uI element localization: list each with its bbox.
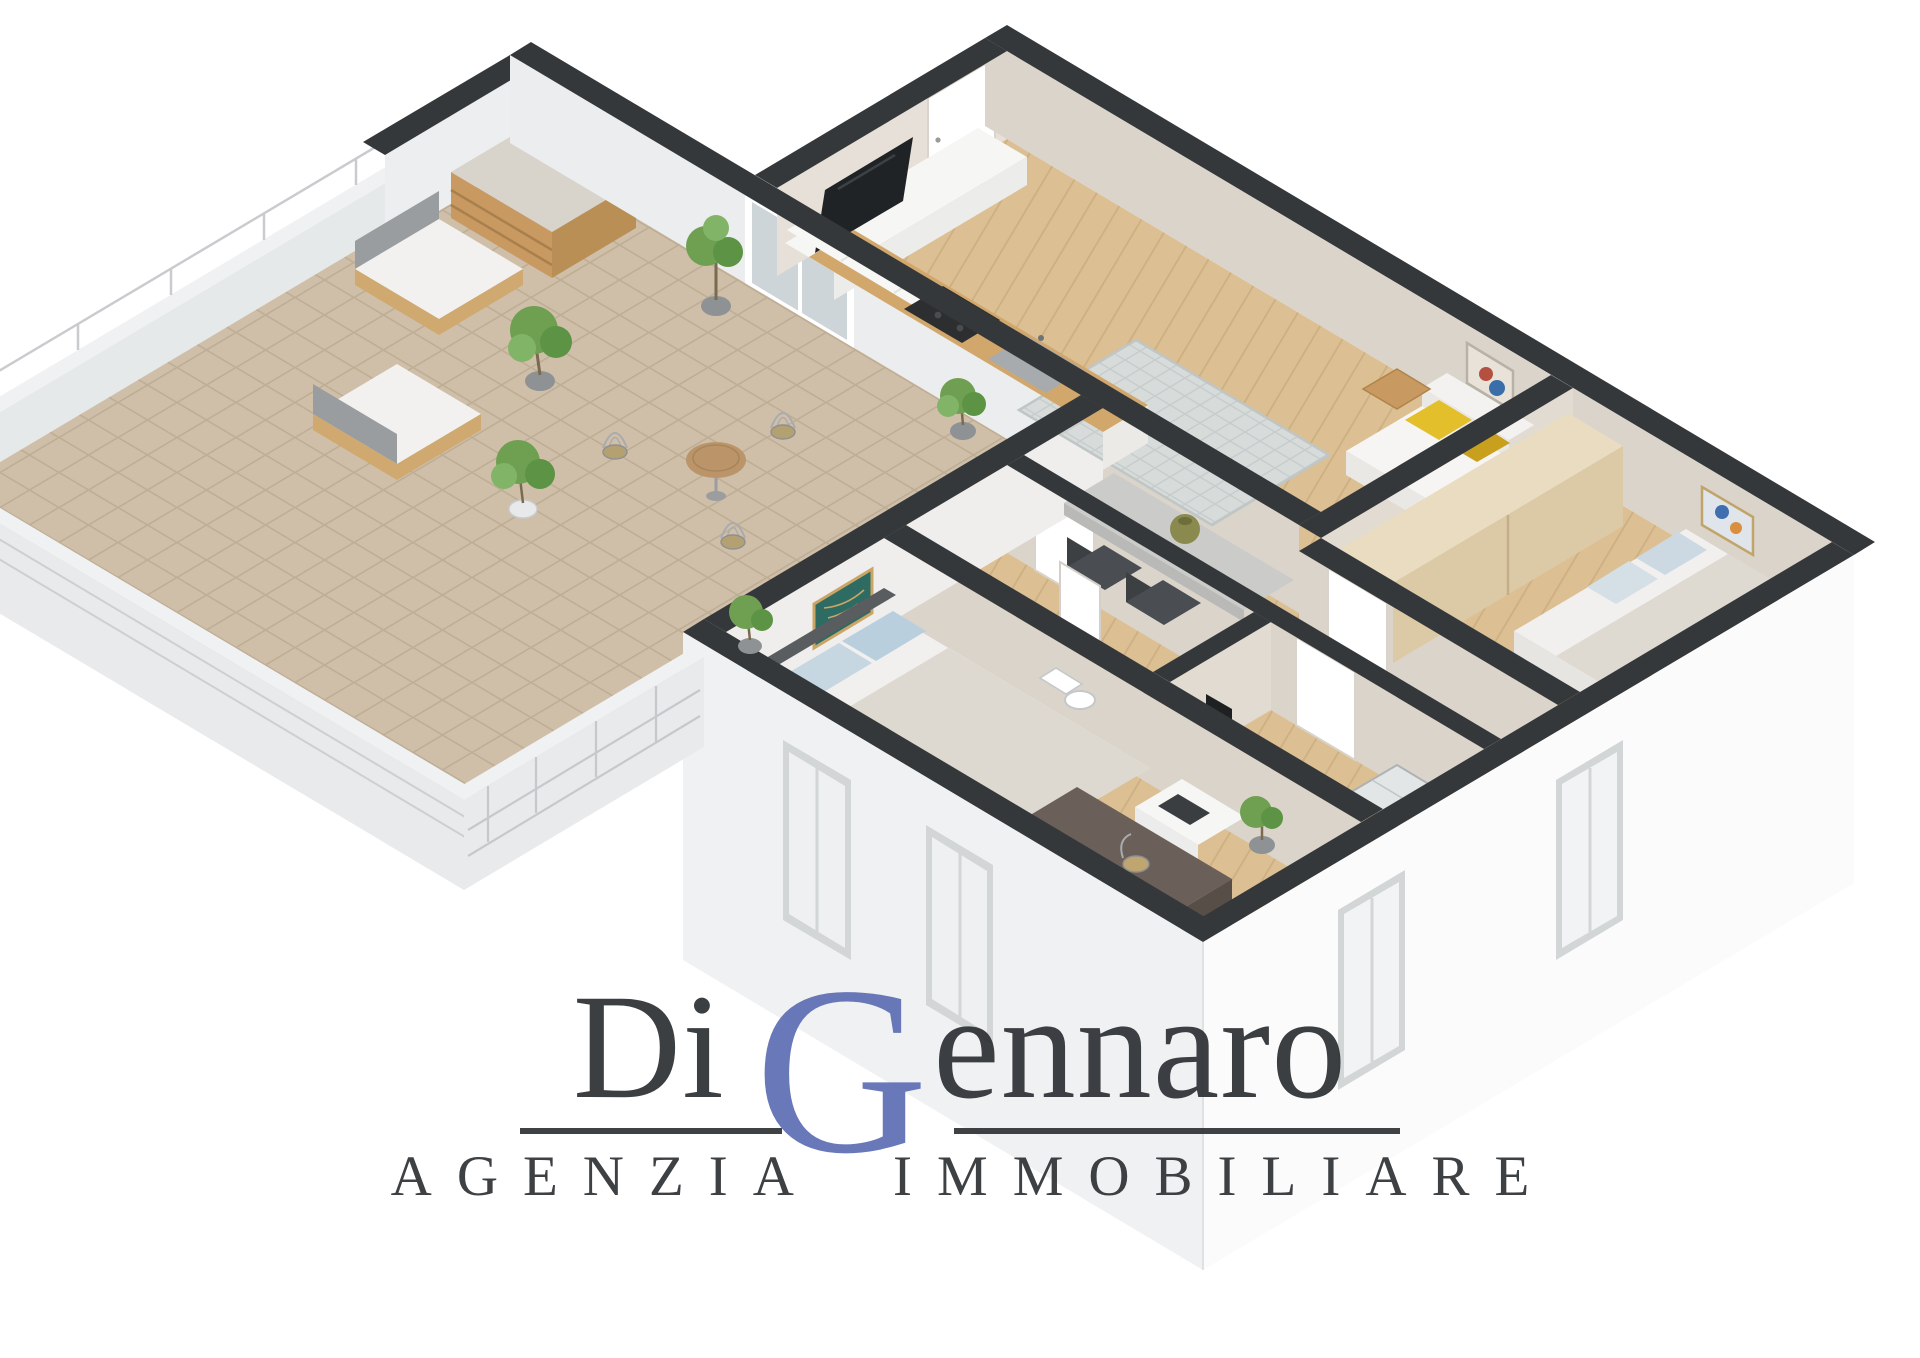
brand-rest: ennaro: [933, 964, 1347, 1130]
brand-subtitle: AGENZIA IMMOBILIARE: [0, 1148, 1920, 1205]
agency-logo: DiGennaro AGENZIA IMMOBILIARE: [0, 972, 1920, 1205]
toilet: [1065, 691, 1095, 709]
brand-name: DiGennaro: [0, 972, 1920, 1122]
brand-prefix: Di: [573, 964, 725, 1130]
